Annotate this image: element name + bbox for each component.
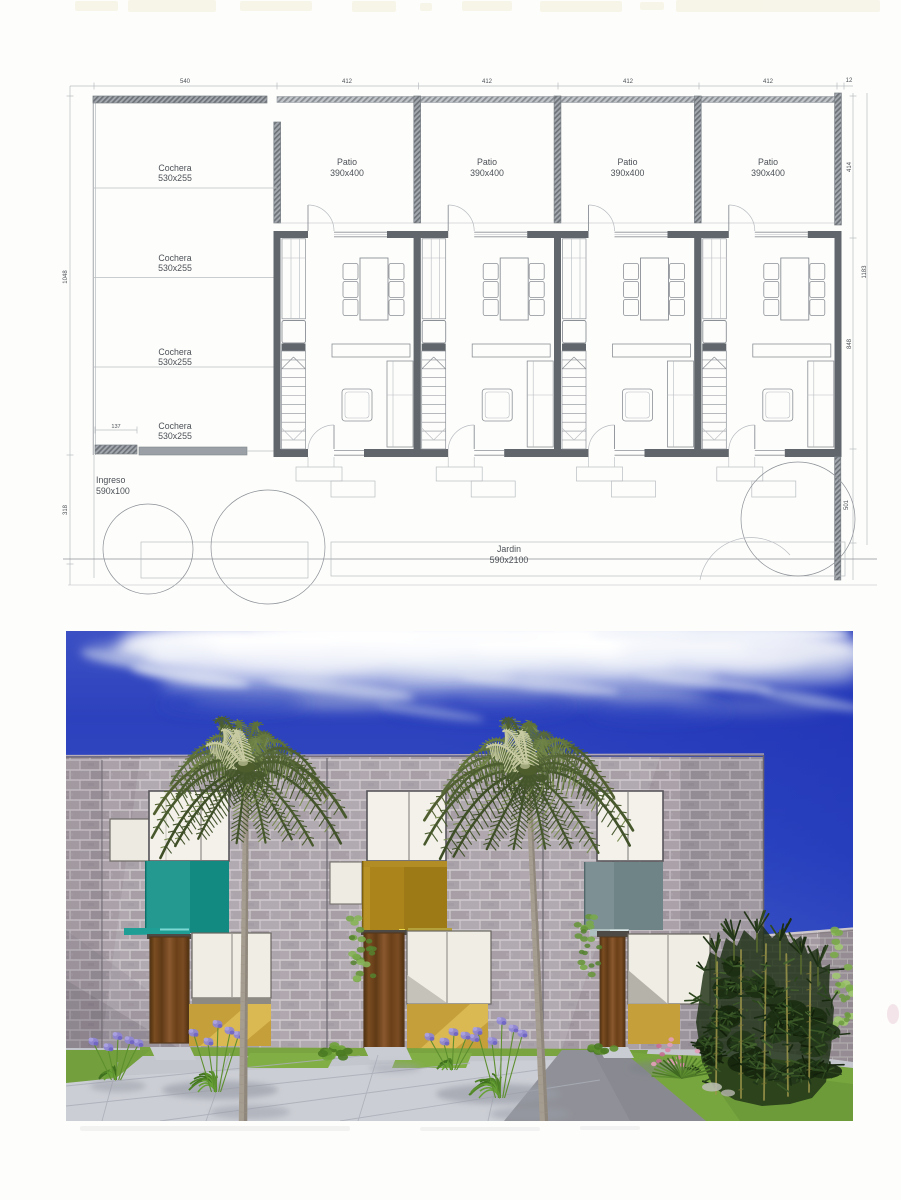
svg-text:Cochera: Cochera: [158, 421, 191, 431]
svg-text:Ingreso: Ingreso: [96, 475, 125, 485]
svg-text:390x400: 390x400: [470, 168, 504, 178]
svg-text:412: 412: [342, 79, 353, 85]
svg-text:1048: 1048: [63, 270, 69, 284]
svg-text:318: 318: [63, 504, 69, 515]
svg-text:390x400: 390x400: [611, 168, 645, 178]
svg-text:Patio: Patio: [758, 157, 778, 167]
svg-text:Cochera: Cochera: [158, 163, 191, 173]
svg-text:Jardin: Jardin: [497, 544, 521, 554]
svg-text:Patio: Patio: [477, 157, 497, 167]
svg-text:390x400: 390x400: [751, 168, 785, 178]
svg-text:Cochera: Cochera: [158, 347, 191, 357]
svg-text:530x255: 530x255: [158, 173, 192, 183]
svg-text:Cochera: Cochera: [158, 253, 191, 263]
svg-text:501: 501: [844, 499, 850, 510]
svg-text:412: 412: [482, 79, 493, 85]
svg-text:530x255: 530x255: [158, 263, 192, 273]
svg-text:1183: 1183: [862, 265, 868, 279]
svg-text:412: 412: [623, 79, 634, 85]
svg-text:530x255: 530x255: [158, 431, 192, 441]
svg-text:414: 414: [847, 161, 853, 172]
svg-text:540: 540: [180, 79, 191, 85]
svg-text:Patio: Patio: [337, 157, 357, 167]
svg-text:590x100: 590x100: [96, 486, 130, 496]
svg-text:590x2100: 590x2100: [490, 555, 529, 565]
svg-text:12: 12: [846, 78, 853, 84]
svg-text:412: 412: [763, 79, 774, 85]
svg-text:Patio: Patio: [617, 157, 637, 167]
svg-text:137: 137: [111, 424, 120, 430]
svg-text:390x400: 390x400: [330, 168, 364, 178]
svg-text:530x255: 530x255: [158, 357, 192, 367]
svg-text:848: 848: [847, 338, 853, 349]
